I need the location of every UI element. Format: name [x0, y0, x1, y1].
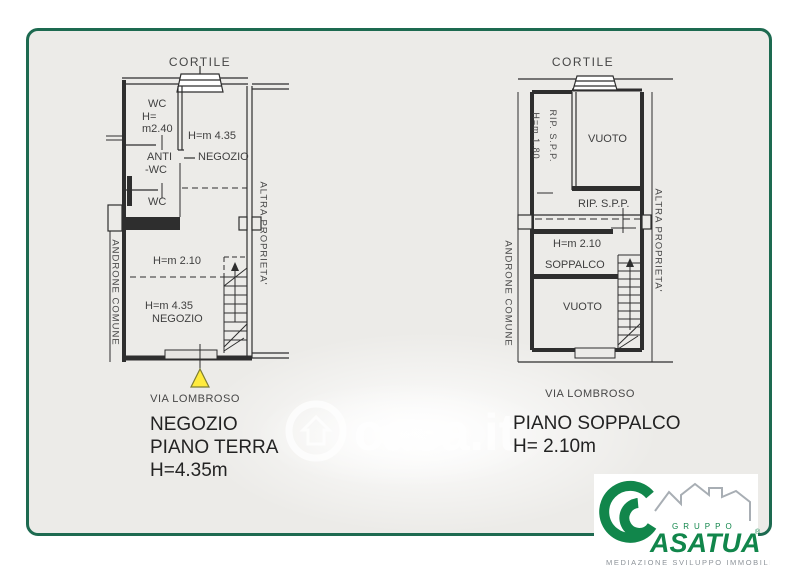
label-rip-vertical: RIP. S.P.P. [548, 94, 558, 178]
watermark-circle [289, 404, 343, 458]
plan-mezzanine [518, 76, 673, 362]
entrance-threshold [165, 350, 217, 359]
label-androne-right: ANDRONE COMUNE [503, 234, 514, 354]
label-vuoto-bottom: VUOTO [563, 301, 602, 313]
section-mark [611, 208, 636, 233]
partition [572, 92, 576, 190]
entrance-step [575, 348, 615, 358]
label-street-right: VIA LOMBROSO [540, 388, 640, 400]
title-line: H=4.35m [150, 459, 278, 482]
wall-right [247, 86, 252, 358]
wall [532, 229, 613, 234]
label-anti: ANTI [147, 151, 172, 163]
label-androne-left: ANDRONE COMUNE [110, 233, 121, 353]
stairs-icon [224, 257, 247, 353]
label-altra-right: ALTRA PROPRIETA' [653, 181, 664, 301]
label-rip-room: RIP. S.P.P. [578, 198, 629, 210]
pillar [518, 215, 532, 229]
door-opening [106, 136, 122, 140]
roofline-icon [655, 484, 750, 521]
stairs-icon [618, 255, 642, 350]
label-wc-top: WC [148, 98, 166, 110]
label-h-eq: H= [142, 111, 156, 123]
logo-spiral-icon [604, 486, 652, 538]
title-line: PIANO TERRA [150, 436, 278, 459]
label-cortile-left: CORTILE [165, 56, 235, 68]
door-leaf [127, 176, 132, 206]
label-h-negozio-top: H=m 4.35 [188, 130, 236, 142]
wall [572, 186, 642, 191]
label-h-negozio-bottom: H=m 4.35 [145, 300, 193, 312]
label-anti-wc: -WC [145, 164, 167, 176]
label-h-rip: H=m 1.80 [531, 94, 541, 178]
label-h-wc: m2.40 [142, 123, 173, 135]
pillar [108, 205, 122, 231]
agency-logo: GRUPPO ASATUA ® MEDIAZIONE SVILUPPO IMMO… [598, 477, 770, 565]
logo-reg-mark: ® [755, 528, 761, 536]
title-line: H= 2.10m [513, 435, 681, 458]
title-mezzanine: PIANO SOPPALCO H= 2.10m [513, 412, 681, 458]
label-cortile-right: CORTILE [548, 56, 618, 68]
label-h-mid-right: H=m 2.10 [553, 238, 601, 250]
partition [178, 86, 184, 150]
watermark-house-icon [303, 417, 329, 444]
watermark-text: casa.it [354, 404, 516, 462]
title-line: PIANO SOPPALCO [513, 412, 681, 435]
courtyard-door [177, 74, 223, 92]
title-ground-floor: NEGOZIO PIANO TERRA H=4.35m [150, 413, 278, 482]
floorplan-listing-image: casa.it CORTILE WC H= m2.40 H=m 4.35 ANT… [0, 0, 800, 565]
entrance-marker-icon [191, 369, 209, 387]
title-line: NEGOZIO [150, 413, 278, 436]
wall [532, 274, 618, 279]
label-altra-left: ALTRA PROPRIETA' [258, 174, 269, 294]
courtyard-door [573, 76, 617, 90]
pillar [239, 217, 247, 230]
label-negozio-bottom: NEGOZIO [152, 313, 203, 325]
label-soppalco: SOPPALCO [545, 259, 605, 271]
label-h-mid-left: H=m 2.10 [153, 255, 201, 267]
watermark: casa.it [289, 404, 516, 462]
label-negozio-top: NEGOZIO [198, 151, 249, 163]
logo-name-text: ASATUA [649, 528, 761, 558]
label-street-left: VIA LOMBROSO [145, 393, 245, 405]
label-vuoto-top: VUOTO [588, 133, 627, 145]
pillar [642, 215, 651, 229]
logo-tagline-text: MEDIAZIONE SVILUPPO IMMOBILIARE [606, 558, 770, 565]
step-wall [122, 217, 180, 230]
label-wc-bottom: WC [148, 196, 166, 208]
